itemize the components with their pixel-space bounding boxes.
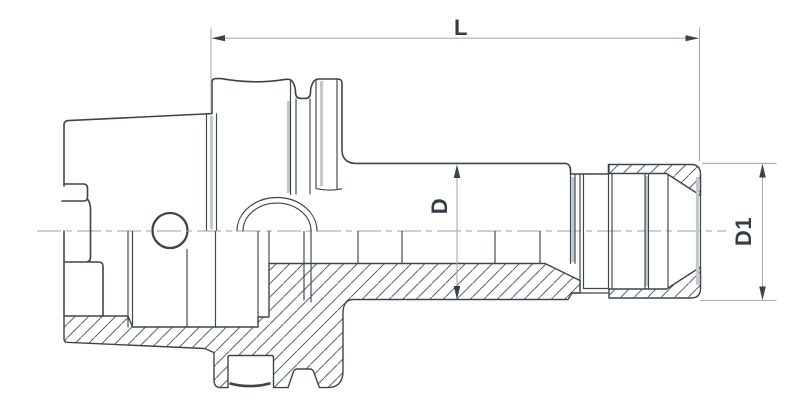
face-notch-lower	[64, 231, 103, 316]
dim-L-arrow-left	[212, 35, 226, 41]
section-body-wall	[64, 264, 580, 388]
dim-D1-arrow-top	[759, 164, 766, 178]
drawing-canvas: L D D1	[0, 0, 812, 408]
dimension-L-label: L	[454, 15, 468, 40]
dome-arcs	[237, 197, 317, 231]
shank-flange-body-outline	[64, 79, 609, 186]
section-nut-top	[609, 165, 701, 196]
shading-strips	[212, 81, 698, 286]
flange-slot-back-wall	[230, 383, 271, 386]
section-hatching	[64, 165, 701, 388]
dimension-D-label: D	[427, 198, 452, 214]
dim-L-arrow-right	[686, 35, 700, 41]
dim-D-arrow-top	[454, 165, 461, 179]
dimension-L: L	[211, 15, 700, 161]
section-nut-bottom	[609, 267, 701, 298]
dimension-D1-label: D1	[731, 217, 756, 246]
dimension-D1: D1	[700, 163, 777, 300]
face-notch-upper	[62, 184, 91, 231]
dim-D1-arrow-bottom	[759, 287, 766, 301]
technical-drawing: L D D1	[0, 0, 812, 408]
